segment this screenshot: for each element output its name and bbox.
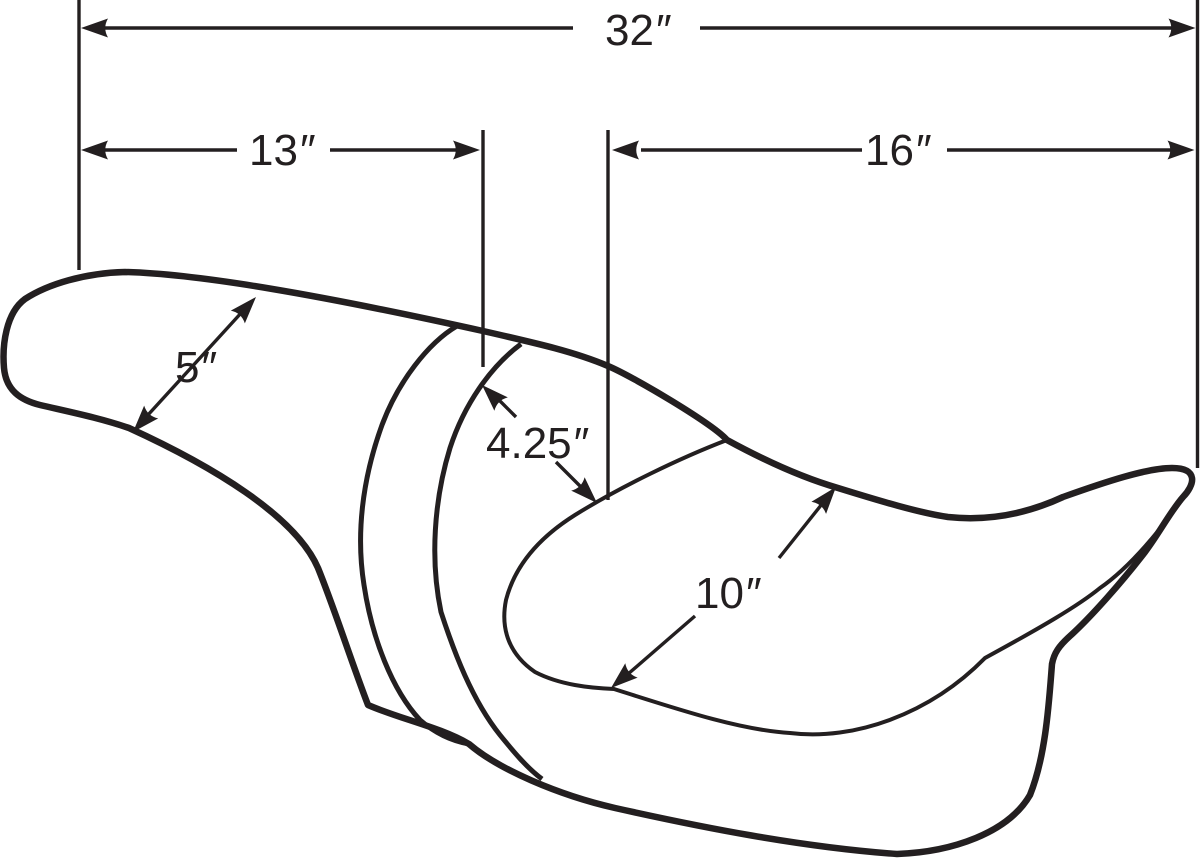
svg-text:32″: 32″	[605, 6, 671, 55]
svg-text:16″: 16″	[865, 126, 931, 175]
svg-text:5″: 5″	[175, 343, 216, 392]
svg-text:10″: 10″	[695, 569, 761, 618]
svg-text:4.25″: 4.25″	[486, 419, 589, 468]
svg-text:13″: 13″	[249, 126, 315, 175]
